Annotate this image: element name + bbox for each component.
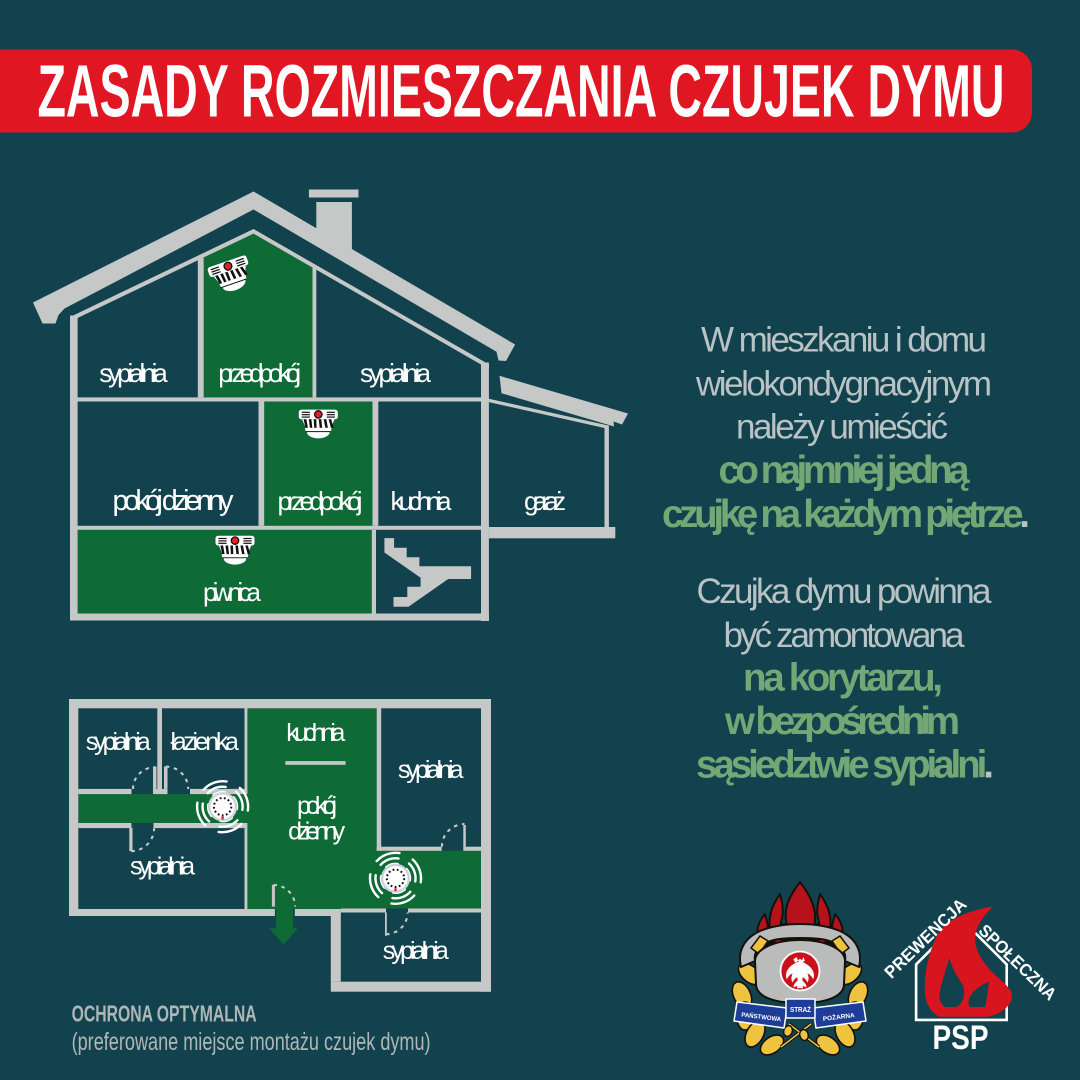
svg-text:czujkę na każdym piętrze.: czujkę na każdym piętrze. [662, 493, 1030, 536]
svg-text:garaż: garaż [524, 486, 566, 516]
svg-text:piwnica: piwnica [203, 577, 262, 607]
svg-text:pokój: pokój [297, 792, 337, 820]
svg-text:sypialnia: sypialnia [99, 358, 168, 388]
svg-text:OCHRONA OPTYMALNA: OCHRONA OPTYMALNA [72, 1001, 257, 1027]
svg-text:Czujka dymu powinna: Czujka dymu powinna [697, 572, 993, 611]
svg-text:co najmniej jedną: co najmniej jedną [719, 449, 971, 492]
svg-text:sypialnia: sypialnia [360, 358, 432, 388]
svg-text:sypialnia: sypialnia [398, 756, 464, 784]
svg-text:PSP: PSP [933, 1019, 989, 1057]
svg-text:łazienka: łazienka [170, 728, 239, 756]
svg-text:sypialnia: sypialnia [86, 728, 151, 756]
svg-text:przedpokój: przedpokój [278, 486, 363, 516]
svg-text:(preferowane miejsce montażu c: (preferowane miejsce montażu czujek dymu… [72, 1028, 431, 1056]
svg-text:STRAŻ: STRAŻ [790, 1005, 811, 1014]
svg-text:wielokondygnacyjnym: wielokondygnacyjnym [695, 365, 992, 404]
svg-text:w bezpośrednim: w bezpośrednim [724, 700, 960, 743]
svg-text:sypialnia: sypialnia [383, 937, 449, 965]
svg-text:sąsiedztwie sypialni.: sąsiedztwie sypialni. [696, 743, 994, 786]
svg-text:ZASADY ROZMIESZCZANIA CZUJEK D: ZASADY ROZMIESZCZANIA CZUJEK DYMU [38, 50, 1005, 133]
svg-text:pokój dzienny: pokój dzienny [113, 485, 235, 517]
svg-text:przedpokój: przedpokój [218, 358, 301, 388]
svg-text:należy umieścić: należy umieścić [736, 408, 948, 447]
svg-text:dzienny: dzienny [288, 818, 346, 846]
svg-text:kuchnia: kuchnia [286, 719, 345, 747]
svg-text:być zamontowana: być zamontowana [724, 616, 966, 655]
svg-text:sypialnia: sypialnia [130, 853, 195, 881]
svg-text:kuchnia: kuchnia [391, 486, 453, 516]
svg-text:na korytarzu,: na korytarzu, [743, 657, 943, 700]
svg-text:W mieszkaniu i domu: W mieszkaniu i domu [701, 321, 987, 360]
